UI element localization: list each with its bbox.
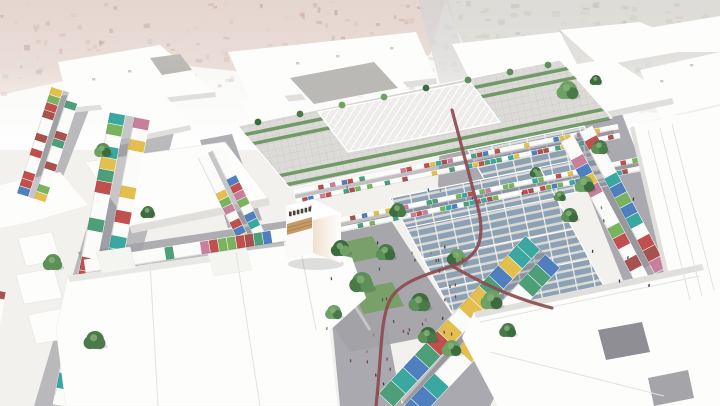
person — [463, 264, 464, 267]
cube-signage-mark — [301, 209, 304, 214]
person — [331, 277, 333, 280]
person — [619, 280, 621, 283]
person — [444, 299, 445, 302]
architectural-aerial-render: Aerial architectural rendering of a mark… — [0, 0, 720, 406]
cube-signage-mark — [305, 208, 308, 213]
person — [350, 359, 352, 362]
person — [393, 320, 395, 323]
person — [444, 246, 445, 249]
person — [375, 374, 377, 377]
person — [377, 241, 378, 244]
cube-signage-mark — [293, 211, 296, 216]
person — [367, 360, 368, 363]
render-canvas — [0, 0, 720, 406]
person — [439, 270, 440, 273]
person — [378, 392, 379, 395]
box-on-mass-1 — [96, 247, 136, 273]
person — [403, 330, 404, 333]
atmosphere-haze — [0, 0, 720, 70]
cube-signage-mark — [297, 210, 300, 215]
person — [451, 333, 453, 336]
person — [449, 285, 450, 288]
cube-signage-mark — [289, 212, 292, 217]
person — [462, 257, 463, 260]
person — [379, 267, 381, 270]
